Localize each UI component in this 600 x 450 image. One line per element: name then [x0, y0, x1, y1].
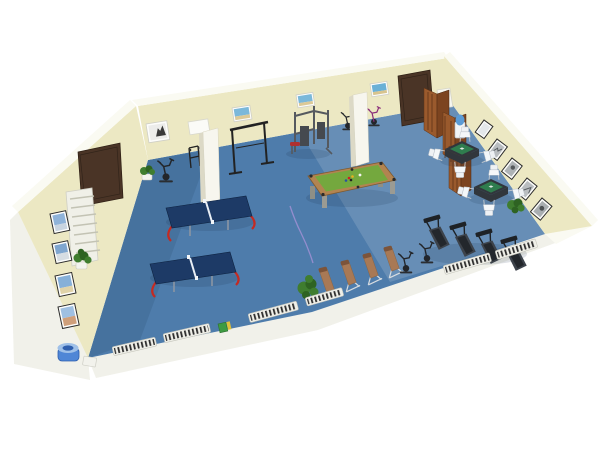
picture-sky-1	[232, 105, 252, 122]
picture-left-3	[55, 272, 76, 296]
drinking-fountain	[58, 343, 80, 361]
picture-left-1	[50, 211, 70, 234]
picture-sky-3	[370, 81, 389, 96]
room-render	[0, 0, 600, 450]
room-render-canvas	[0, 0, 600, 450]
picture-left-2	[52, 241, 72, 264]
picture-sky-2	[296, 92, 315, 107]
corner-box	[82, 356, 96, 367]
picture-figure	[146, 121, 170, 143]
